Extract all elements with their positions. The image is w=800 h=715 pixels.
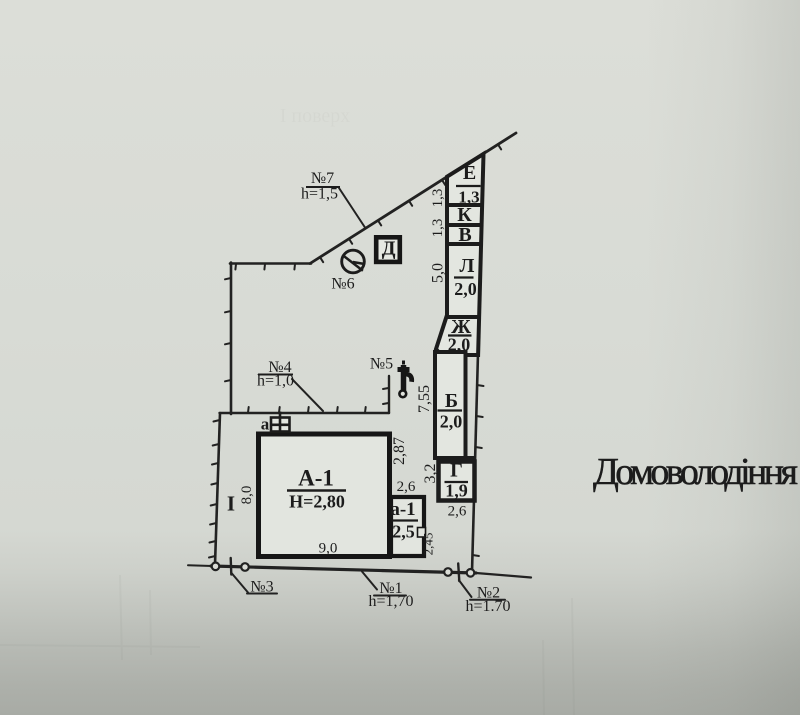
svg-text:9,0: 9,0 [319,541,338,557]
svg-text:2,45: 2,45 [421,533,436,556]
svg-text:2,0: 2,0 [440,412,463,432]
svg-text:1,3: 1,3 [430,189,446,208]
svg-text:№3: №3 [250,579,273,596]
svg-text:1,9: 1,9 [445,481,468,501]
svg-text:1,3: 1,3 [430,219,446,238]
svg-text:Б: Б [445,390,458,412]
svg-text:h=1,70: h=1,70 [368,593,413,610]
svg-text:І поверх: І поверх [280,105,351,127]
svg-text:№7: №7 [311,170,334,187]
svg-text:2,87: 2,87 [391,437,408,465]
svg-text:2,5: 2,5 [392,522,415,542]
svg-text:В: В [458,224,471,246]
svg-text:Н=2,80: Н=2,80 [289,492,345,512]
svg-text:Л: Л [460,255,475,277]
svg-text:а: а [261,415,270,434]
svg-text:h=1,0: h=1,0 [257,373,294,390]
svg-text:2,6: 2,6 [448,504,467,520]
svg-text:а-1: а-1 [390,499,415,520]
svg-text:І: І [227,492,235,516]
svg-text:А-1: А-1 [298,466,334,491]
svg-text:2,6: 2,6 [397,479,416,495]
svg-text:Е: Е [463,162,476,184]
svg-text:h=1.70: h=1.70 [465,598,510,615]
svg-text:7,55: 7,55 [416,385,433,413]
svg-text:№5: №5 [370,356,393,373]
svg-text:Г: Г [450,460,463,482]
svg-text:Д: Д [382,238,396,260]
svg-text:8,0: 8,0 [239,486,255,505]
svg-text:2,0: 2,0 [454,279,477,299]
svg-text:5,0: 5,0 [430,263,447,283]
svg-text:3,2: 3,2 [422,464,439,484]
svg-text:Домоволодіння: Домоволодіння [593,451,798,493]
svg-text:2,0: 2,0 [448,335,471,355]
svg-text:К: К [457,204,472,226]
svg-text:h=1,5: h=1,5 [301,186,338,203]
svg-text:№6: №6 [331,276,354,293]
